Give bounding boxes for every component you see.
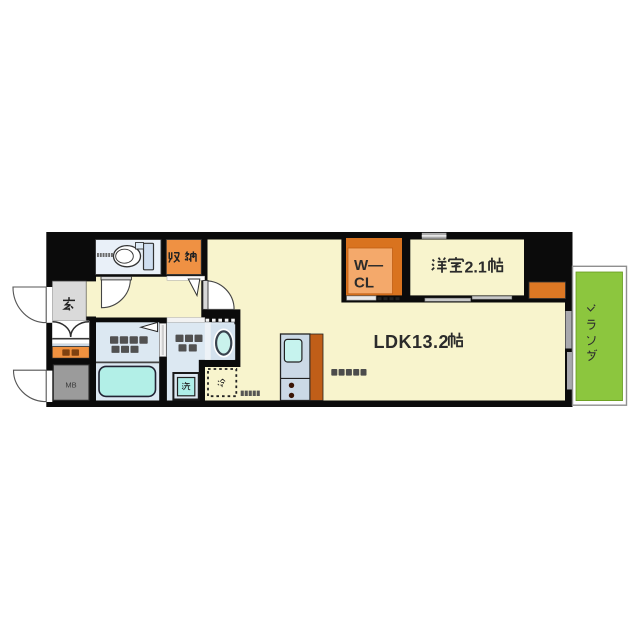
svg-text:CL: CL: [354, 275, 374, 292]
svg-text:W—: W—: [354, 257, 383, 274]
svg-text:2.1: 2.1: [465, 260, 487, 277]
svg-text:MB: MB: [65, 381, 76, 390]
svg-text:LDK13.2: LDK13.2: [374, 332, 450, 352]
